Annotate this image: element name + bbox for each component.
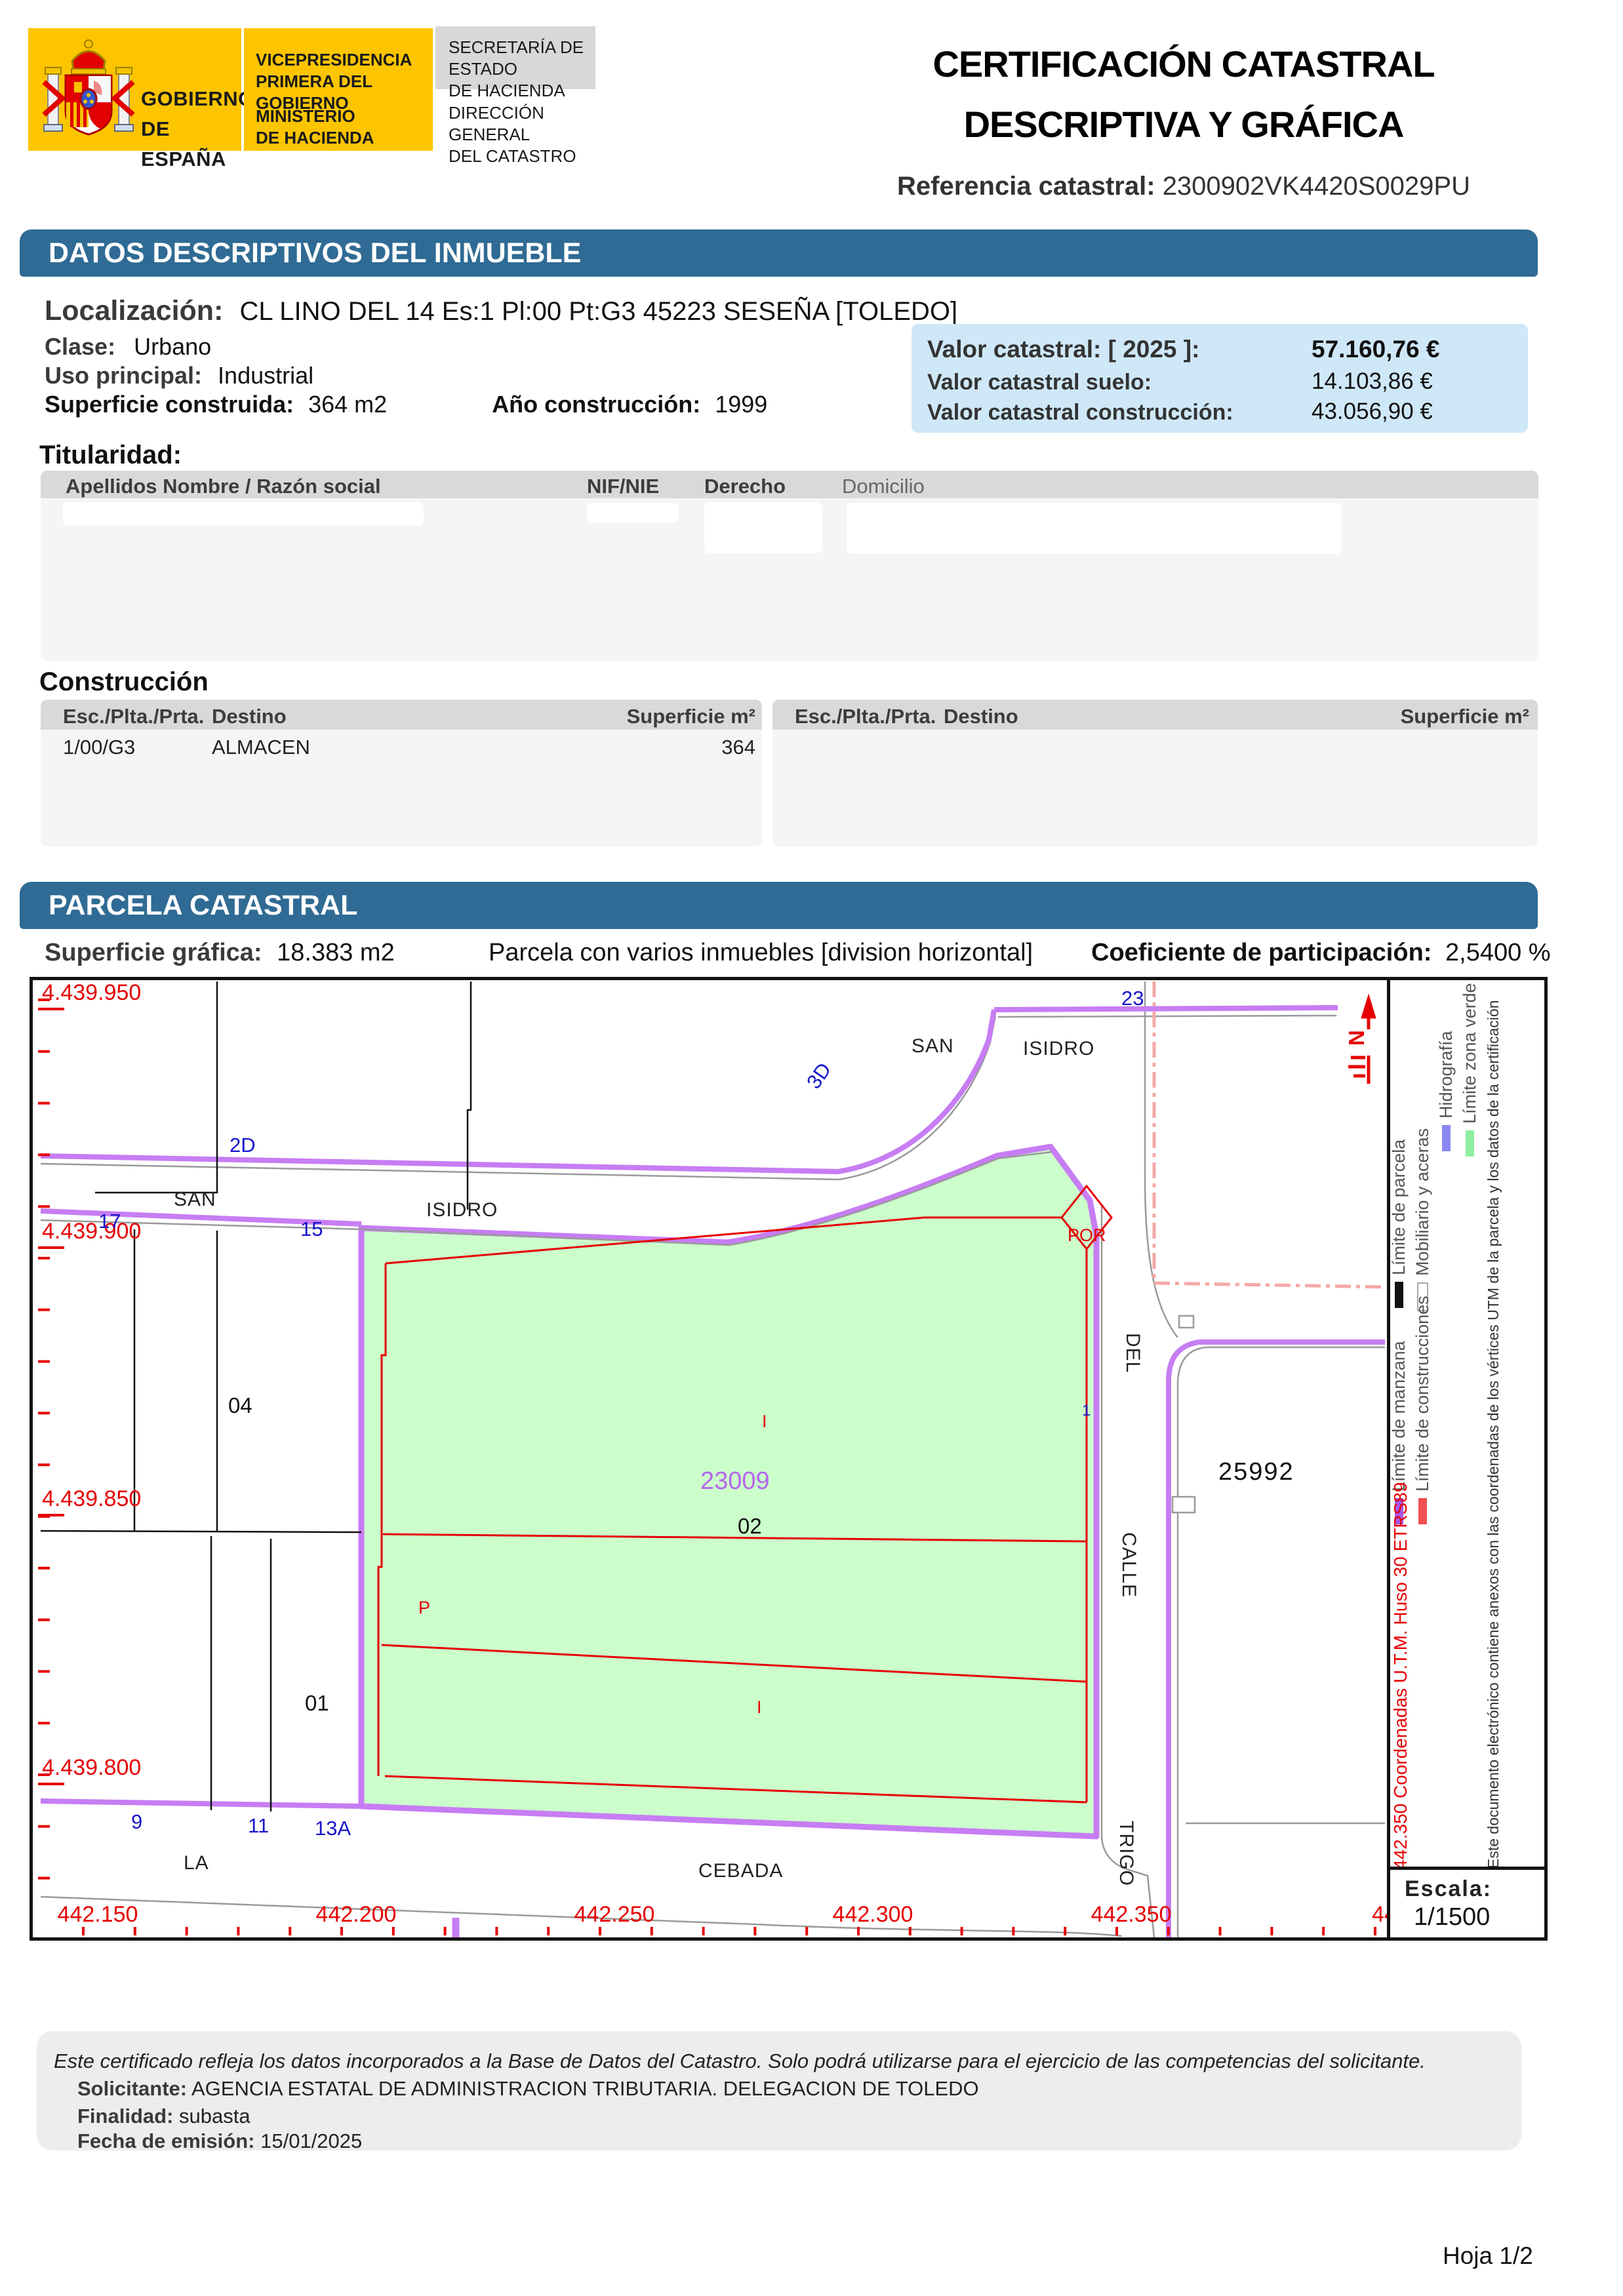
map-label: 02 <box>738 1514 762 1538</box>
map-label: 4.439.800 <box>42 1755 141 1780</box>
coeficiente-row: Coeficiente de participación: 2,5400 % <box>1091 939 1551 967</box>
cons-cell-superficie: 364 <box>669 736 755 759</box>
fecha-label: Fecha de emisión: <box>77 2129 254 2152</box>
tit-col-nif: NIF/NIE <box>587 475 659 498</box>
map-label: CEBADA <box>698 1860 783 1882</box>
cons-col-superficie-2: Superficie m² <box>1351 705 1529 728</box>
cons-cell-destino: ALMACEN <box>212 736 310 759</box>
map-label: 23009 <box>700 1467 770 1495</box>
localizacion-row: Localización: CL LINO DEL 14 Es:1 Pl:00 … <box>45 295 957 327</box>
map-label: I <box>762 1412 767 1431</box>
map-label: 25992 <box>1218 1458 1294 1486</box>
clase-value: Urbano <box>134 333 211 360</box>
map-label: 13A <box>315 1817 351 1840</box>
map-label: 4.439.900 <box>42 1219 141 1244</box>
legend-label: Mobiliario y aceras <box>1413 1128 1433 1276</box>
map-label: POR <box>1068 1225 1106 1245</box>
legend-item: Límite de parcela <box>1388 1139 1410 1308</box>
cadastral-map: 4.439.9504.439.9004.439.8504.439.800442.… <box>30 977 1548 1941</box>
map-label: CALLE <box>1118 1532 1140 1598</box>
gobierno-text: GOBIERNO DE ESPAÑA <box>141 84 254 174</box>
cons-col-superficie: Superficie m² <box>577 705 755 728</box>
map-label: 2D <box>230 1134 256 1157</box>
legend-label: Límite de construcciones <box>1413 1296 1433 1492</box>
map-label: 11 <box>248 1814 269 1837</box>
valor-label: Valor catastral: [ 2025 ]: <box>927 336 1199 363</box>
map-label: 15 <box>300 1217 323 1240</box>
legend-swatch <box>1395 1282 1403 1308</box>
parcela-note: Parcela con varios inmuebles [division h… <box>489 939 1033 967</box>
valor-construccion-label: Valor catastral construcción: <box>927 400 1233 426</box>
map-label: N <box>1344 1030 1369 1046</box>
tit-col-nombre: Apellidos Nombre / Razón social <box>66 475 381 498</box>
tit-col-derecho: Derecho <box>704 475 786 498</box>
map-label: 4.439.850 <box>42 1486 141 1511</box>
map-label: 23 <box>1121 987 1144 1010</box>
map-label: 442. <box>1372 1902 1387 1927</box>
ministry-line: DE HACIENDA <box>256 127 374 149</box>
superficie-value: 364 m2 <box>308 391 387 418</box>
section-title: DATOS DESCRIPTIVOS DEL INMUEBLE <box>49 237 581 269</box>
redacted-name <box>63 502 424 526</box>
legend-label: Límite zona verde <box>1460 983 1480 1124</box>
footer-disclaimer: Este certificado refleja los datos incor… <box>54 2049 1426 2073</box>
legend-item: Mobiliario y aceras <box>1411 1128 1433 1311</box>
scale-box: Escala: 1/1500 <box>1390 1867 1544 1937</box>
secretary-line: SECRETARÍA DE ESTADO <box>449 37 595 80</box>
clase-label: Clase: <box>45 333 115 360</box>
ref-label: Referencia catastral: <box>897 172 1155 201</box>
legend-item: Límite zona verde <box>1458 983 1481 1157</box>
direction-box: DIRECCIÓN GENERAL DEL CATASTRO <box>435 97 595 151</box>
valor-suelo-value: 14.103,86 € <box>1312 368 1433 395</box>
coeficiente-value: 2,5400 % <box>1445 939 1551 966</box>
map-label: I <box>757 1697 762 1717</box>
map-label: 17 <box>98 1210 121 1233</box>
cadastral-certificate-page: GOBIERNO DE ESPAÑA VICEPRESIDENCIA PRIME… <box>0 0 1623 2296</box>
map-label: 442.200 <box>316 1902 397 1927</box>
titularidad-label: Titularidad: <box>39 441 182 470</box>
superficie-grafica-label: Superficie gráfica: <box>45 939 262 966</box>
legend-note: Este documento electrónico contiene anex… <box>1485 1000 1506 1869</box>
cons-cell-esc: 1/00/G3 <box>63 736 135 759</box>
map-label: SAN <box>174 1189 216 1210</box>
document-title: CERTIFICACIÓN CATASTRAL DESCRIPTIVA Y GR… <box>872 34 1495 155</box>
map-label: 01 <box>305 1691 329 1715</box>
legend-note: 442.350 Coordenadas U.T.M. Huso 30 ETRS8… <box>1390 1482 1411 1870</box>
gobierno-logo-box: GOBIERNO DE ESPAÑA <box>28 28 241 151</box>
solicitante-row: Solicitante: AGENCIA ESTATAL DE ADMINIST… <box>77 2077 979 2101</box>
map-label: P <box>418 1598 430 1617</box>
localizacion-label: Localización: <box>45 295 223 327</box>
redacted-derecho <box>704 502 822 553</box>
scale-value: 1/1500 <box>1414 1903 1544 1931</box>
clase-row: Clase: Urbano <box>45 333 211 361</box>
legend-item: Hidrografía <box>1435 1031 1457 1151</box>
map-label: 442.250 <box>574 1902 655 1927</box>
legend-divider <box>1387 980 1390 1937</box>
fecha-row: Fecha de emisión: 15/01/2025 <box>77 2129 362 2153</box>
section-title: PARCELA CATASTRAL <box>49 890 357 922</box>
map-label: 1 <box>1082 1402 1091 1419</box>
titularidad-body <box>41 498 1538 661</box>
map-label: 9 <box>131 1810 142 1833</box>
anio-label: Año construcción: <box>492 391 700 418</box>
tit-col-domicilio: Domicilio <box>842 475 925 498</box>
valor-value: 57.160,76 € <box>1312 336 1439 363</box>
map-label: ISIDRO <box>1023 1038 1094 1059</box>
ministry-box: VICEPRESIDENCIA PRIMERA DEL GOBIERNO MIN… <box>244 28 433 151</box>
uso-label: Uso principal: <box>45 362 202 389</box>
direction-line: DIRECCIÓN GENERAL <box>449 102 595 146</box>
map-label: SAN <box>912 1035 954 1057</box>
uso-row: Uso principal: Industrial <box>45 362 313 389</box>
legend-item: Límite de construcciones <box>1411 1296 1433 1524</box>
fecha-value: 15/01/2025 <box>260 2129 362 2152</box>
map-label: 4.439.950 <box>42 980 141 1005</box>
map-drawing: 4.439.9504.439.9004.439.8504.439.800442.… <box>33 980 1387 1937</box>
secretary-box: SECRETARÍA DE ESTADO DE HACIENDA <box>435 26 595 89</box>
solicitante-label: Solicitante: <box>77 2077 187 2100</box>
finalidad-row: Finalidad: subasta <box>77 2105 250 2128</box>
ministry-line: MINISTERIO <box>256 106 374 127</box>
legend-label: Hidrografía <box>1436 1031 1456 1118</box>
cadastral-reference: Referencia catastral: 2300902VK4420S0029… <box>872 172 1495 201</box>
map-label: LA <box>184 1852 209 1874</box>
legend-label: Límite de manzana <box>1389 1341 1409 1492</box>
cons-col-esc: Esc./Plta./Prta. <box>63 705 204 728</box>
map-label: 442.300 <box>833 1902 913 1927</box>
coeficiente-label: Coeficiente de participación: <box>1091 939 1432 966</box>
map-label: TRIGO <box>1115 1821 1137 1886</box>
map-label: DEL <box>1122 1333 1144 1373</box>
superficie-grafica-row: Superficie gráfica: 18.383 m2 <box>45 939 395 967</box>
scale-label: Escala: <box>1405 1876 1544 1902</box>
localizacion-value: CL LINO DEL 14 Es:1 Pl:00 Pt:G3 45223 SE… <box>240 297 958 326</box>
legend-label: Límite de parcela <box>1389 1139 1409 1275</box>
legend-swatch <box>1466 1130 1474 1157</box>
construccion-table-left-body <box>41 730 762 846</box>
uso-value: Industrial <box>218 362 313 389</box>
ref-value: 2300902VK4420S0029PU <box>1163 172 1470 201</box>
redacted-nif <box>587 503 679 523</box>
legend-swatch <box>1418 1498 1427 1524</box>
valor-catastral-box: Valor catastral: [ 2025 ]: 57.160,76 € V… <box>912 324 1528 433</box>
anio-value: 1999 <box>715 391 767 418</box>
map-label: 442.350 <box>1091 1902 1172 1927</box>
direction-line: DEL CATASTRO <box>449 146 595 167</box>
section-bar-parcela: PARCELA CATASTRAL <box>20 882 1538 929</box>
superficie-label: Superficie construida: <box>45 391 294 418</box>
cons-col-destino-2: Destino <box>944 705 1018 728</box>
valor-construccion-value: 43.056,90 € <box>1312 399 1433 425</box>
legend-swatch <box>1442 1125 1451 1151</box>
legend-swatch <box>1395 1498 1403 1524</box>
finalidad-label: Finalidad: <box>77 2105 173 2128</box>
superficie-grafica-value: 18.383 m2 <box>277 939 395 966</box>
page-number: Hoja 1/2 <box>1443 2242 1533 2270</box>
valor-suelo-label: Valor catastral suelo: <box>927 370 1152 395</box>
cons-col-destino: Destino <box>212 705 287 728</box>
map-label: ISIDRO <box>426 1199 498 1221</box>
map-label: 04 <box>228 1393 252 1417</box>
cons-col-esc-2: Esc./Plta./Prta. <box>795 705 936 728</box>
map-label: 442.150 <box>58 1902 138 1927</box>
footer-box: Este certificado refleja los datos incor… <box>37 2031 1521 2150</box>
construccion-table-right-body <box>772 730 1538 846</box>
superficie-row: Superficie construida: 364 m2 Año constr… <box>45 391 767 418</box>
redacted-domicilio <box>847 503 1342 554</box>
legend-item: Límite de manzana <box>1388 1341 1410 1524</box>
legend-swatch <box>1417 1282 1428 1311</box>
spain-coat-of-arms-icon <box>36 36 141 144</box>
ministry-line: VICEPRESIDENCIA <box>256 49 433 71</box>
section-bar-datos: DATOS DESCRIPTIVOS DEL INMUEBLE <box>20 229 1538 277</box>
construccion-label: Construcción <box>39 667 209 697</box>
finalidad-value: subasta <box>179 2105 250 2128</box>
solicitante-value: AGENCIA ESTATAL DE ADMINISTRACION TRIBUT… <box>191 2077 979 2100</box>
